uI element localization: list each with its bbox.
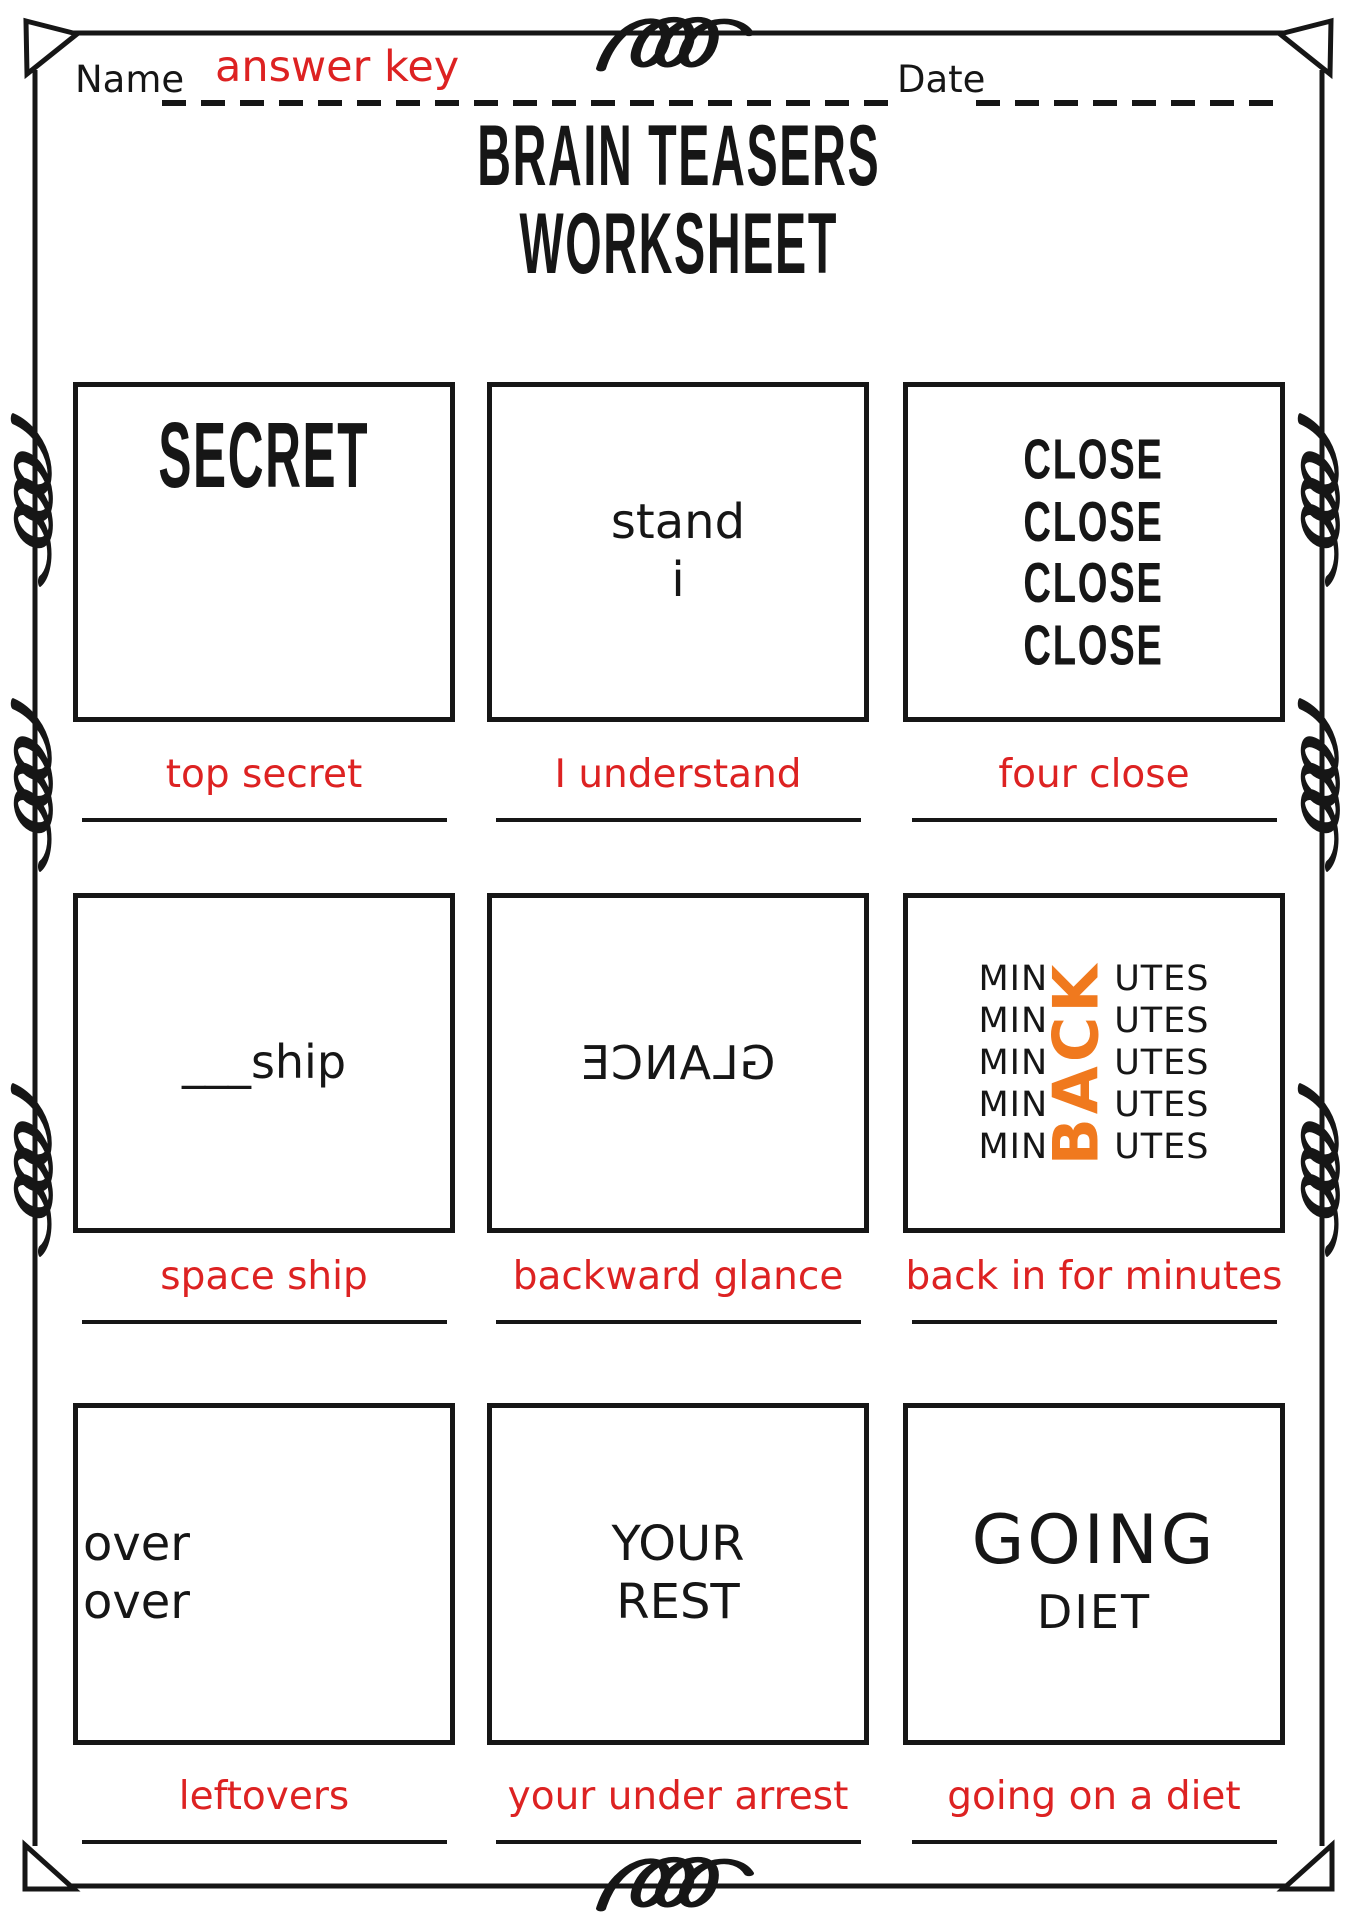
answer-line [912,1320,1277,1324]
puzzle-text: SECRET [159,403,370,510]
puzzle-text: UTES [1114,958,1209,1000]
puzzle-text: CLOSE [1024,428,1164,490]
puzzle-text: i [611,552,745,610]
puzzle-text-mirrored: GLANCE [580,1036,775,1090]
puzzle-text: CLOSE [1024,490,1164,552]
puzzle-text: MIN [978,1126,1048,1168]
puzzle-text: MIN [978,958,1048,1000]
puzzle-text: MIN [978,1084,1048,1126]
answer-back-in-for-minutes: back in for minutes [903,1254,1285,1324]
answer-line [82,818,447,822]
puzzle-box-secret: SECRET [73,382,455,722]
vertical-back-word: BACK [1040,961,1113,1166]
puzzle-text: over [83,1574,190,1632]
date-label: Date [897,58,985,101]
puzzle-text: over [83,1516,190,1574]
answer-text: leftovers [73,1774,455,1820]
answer-line [82,1320,447,1324]
name-blank-line [162,100,888,106]
answer-line [496,1840,861,1844]
minutes-rows: MINUTES MINUTES MINUTES MINUTES MINUTES … [978,958,1209,1168]
answer-line [912,1840,1277,1844]
puzzle-box-back-in-minutes: MINUTES MINUTES MINUTES MINUTES MINUTES … [903,893,1285,1233]
answer-space-ship: space ship [73,1254,455,1324]
answer-your-under-arrest: your under arrest [487,1774,869,1844]
answer-backward-glance: backward glance [487,1254,869,1324]
puzzle-text: DIET [972,1585,1217,1640]
answer-top-secret: top secret [73,752,455,822]
answer-going-on-a-diet: going on a diet [903,1774,1285,1844]
answer-text: your under arrest [487,1774,869,1820]
puzzle-text: REST [612,1574,745,1632]
puzzle-box-stand-i: stand i [487,382,869,722]
answer-four-close: four close [903,752,1285,822]
puzzle-box-close-x4: CLOSE CLOSE CLOSE CLOSE [903,382,1285,722]
answer-line [496,818,861,822]
name-label: Name [75,58,184,101]
puzzle-box-blank-ship: ___ship [73,893,455,1233]
puzzle-text: UTES [1114,1084,1209,1126]
puzzle-box-going-diet: GOING DIET [903,1403,1285,1745]
date-blank-line [976,100,1283,106]
page-title: BRAIN TEASERS WORKSHEET [0,112,1358,228]
answer-line [912,818,1277,822]
title-line-1: BRAIN TEASERS [477,112,880,200]
answer-text: back in for minutes [903,1254,1285,1300]
answer-text: backward glance [487,1254,869,1300]
puzzle-text: UTES [1114,1042,1209,1084]
puzzle-text: stand [611,494,745,552]
worksheet-page: Name answer key Date BRAIN TEASERS WORKS… [0,0,1358,1920]
puzzle-box-your-rest: YOUR REST [487,1403,869,1745]
puzzle-box-mirrored-glance: GLANCE [487,893,869,1233]
puzzle-text: GOING [972,1507,1217,1575]
puzzle-text: MIN [978,1042,1048,1084]
answer-text: top secret [73,752,455,798]
answer-i-understand: I understand [487,752,869,822]
puzzle-text: CLOSE [1024,552,1164,614]
answer-text: going on a diet [903,1774,1285,1820]
puzzle-text: YOUR [612,1516,745,1574]
answer-leftovers: leftovers [73,1774,455,1844]
answer-text: four close [903,752,1285,798]
name-answer-value: answer key [215,42,459,92]
puzzle-box-over-over: over over [73,1403,455,1745]
answer-line [82,1840,447,1844]
puzzle-text: ___ship [182,1035,346,1090]
answer-line [496,1320,861,1324]
answer-text: I understand [487,752,869,798]
title-line-2: WORKSHEET [477,200,880,288]
puzzle-text: UTES [1114,1126,1209,1168]
puzzle-text: CLOSE [1024,614,1164,676]
puzzle-text: MIN [978,1000,1048,1042]
answer-text: space ship [73,1254,455,1300]
puzzle-text: UTES [1114,1000,1209,1042]
